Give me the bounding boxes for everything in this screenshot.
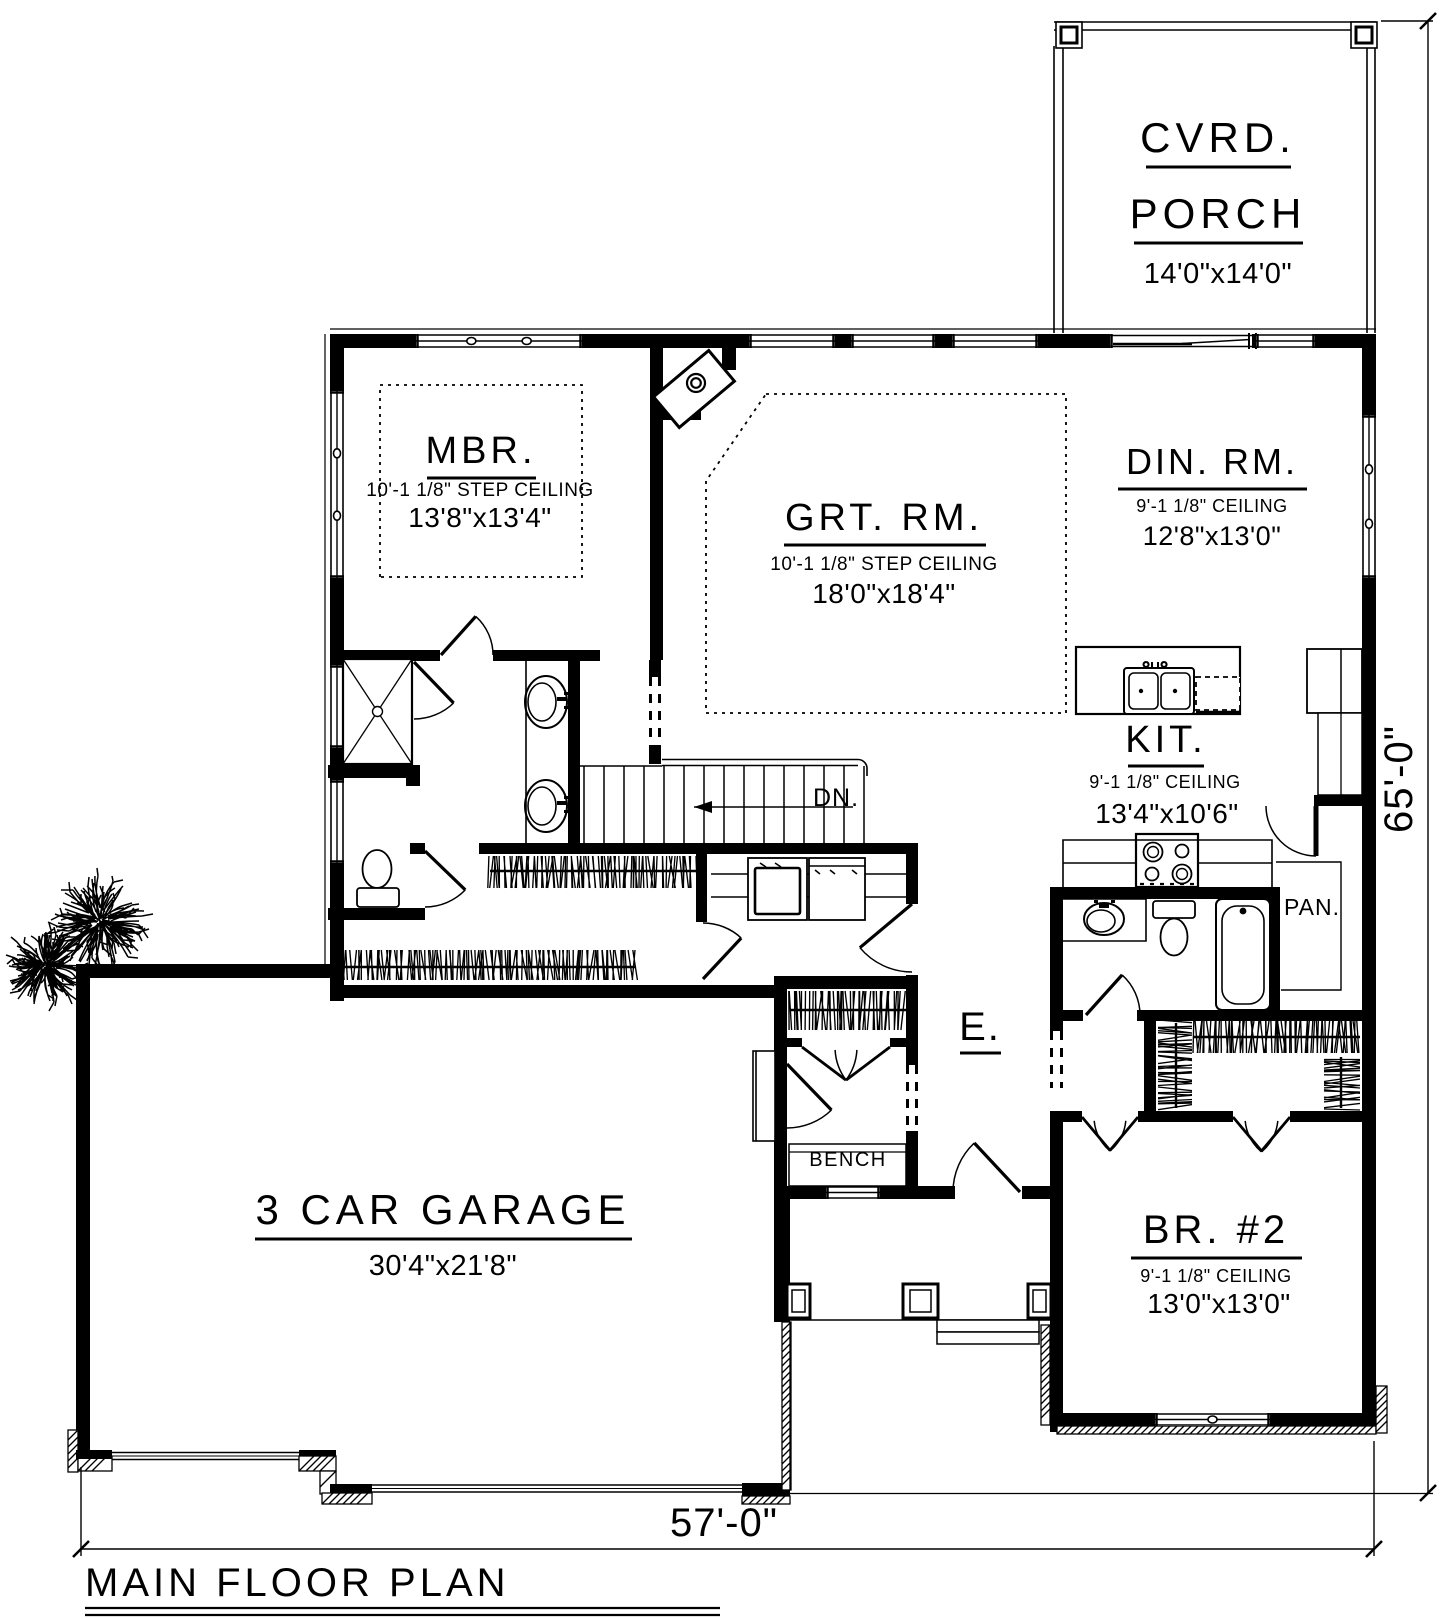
svg-text:BR. #2: BR. #2 — [1143, 1208, 1289, 1252]
svg-text:13'8"x13'4": 13'8"x13'4" — [408, 502, 552, 533]
svg-text:GRT. RM.: GRT. RM. — [785, 497, 983, 539]
svg-text:3 CAR GARAGE: 3 CAR GARAGE — [255, 1186, 630, 1233]
svg-text:KIT.: KIT. — [1125, 719, 1206, 761]
svg-text:18'0"x18'4": 18'0"x18'4" — [812, 578, 956, 609]
svg-text:13'0"x13'0": 13'0"x13'0" — [1147, 1288, 1291, 1319]
svg-text:14'0"x14'0": 14'0"x14'0" — [1144, 258, 1292, 290]
svg-text:12'8"x13'0": 12'8"x13'0" — [1143, 521, 1282, 551]
svg-text:65'-0": 65'-0" — [1377, 725, 1421, 833]
svg-text:10'-1 1/8" STEP CEILING: 10'-1 1/8" STEP CEILING — [770, 554, 997, 575]
svg-text:MAIN FLOOR PLAN: MAIN FLOOR PLAN — [85, 1561, 510, 1605]
svg-text:9'-1 1/8" CEILING: 9'-1 1/8" CEILING — [1089, 772, 1240, 792]
svg-text:MBR.: MBR. — [426, 430, 537, 472]
svg-text:9'-1 1/8" CEILING: 9'-1 1/8" CEILING — [1140, 1266, 1291, 1286]
svg-text:CVRD.: CVRD. — [1140, 114, 1296, 161]
svg-text:DN.: DN. — [813, 784, 859, 812]
svg-text:30'4"x21'8": 30'4"x21'8" — [369, 1250, 517, 1282]
svg-text:E.: E. — [959, 1005, 1001, 1049]
svg-text:9'-1 1/8" CEILING: 9'-1 1/8" CEILING — [1136, 496, 1287, 516]
svg-text:DIN. RM.: DIN. RM. — [1126, 441, 1298, 482]
svg-text:10'-1 1/8" STEP CEILING: 10'-1 1/8" STEP CEILING — [366, 480, 593, 501]
svg-text:BENCH: BENCH — [809, 1149, 887, 1171]
svg-text:PAN.: PAN. — [1284, 894, 1340, 920]
svg-text:PORCH: PORCH — [1130, 190, 1307, 237]
svg-text:13'4"x10'6": 13'4"x10'6" — [1095, 798, 1239, 829]
svg-text:57'-0": 57'-0" — [670, 1501, 778, 1545]
